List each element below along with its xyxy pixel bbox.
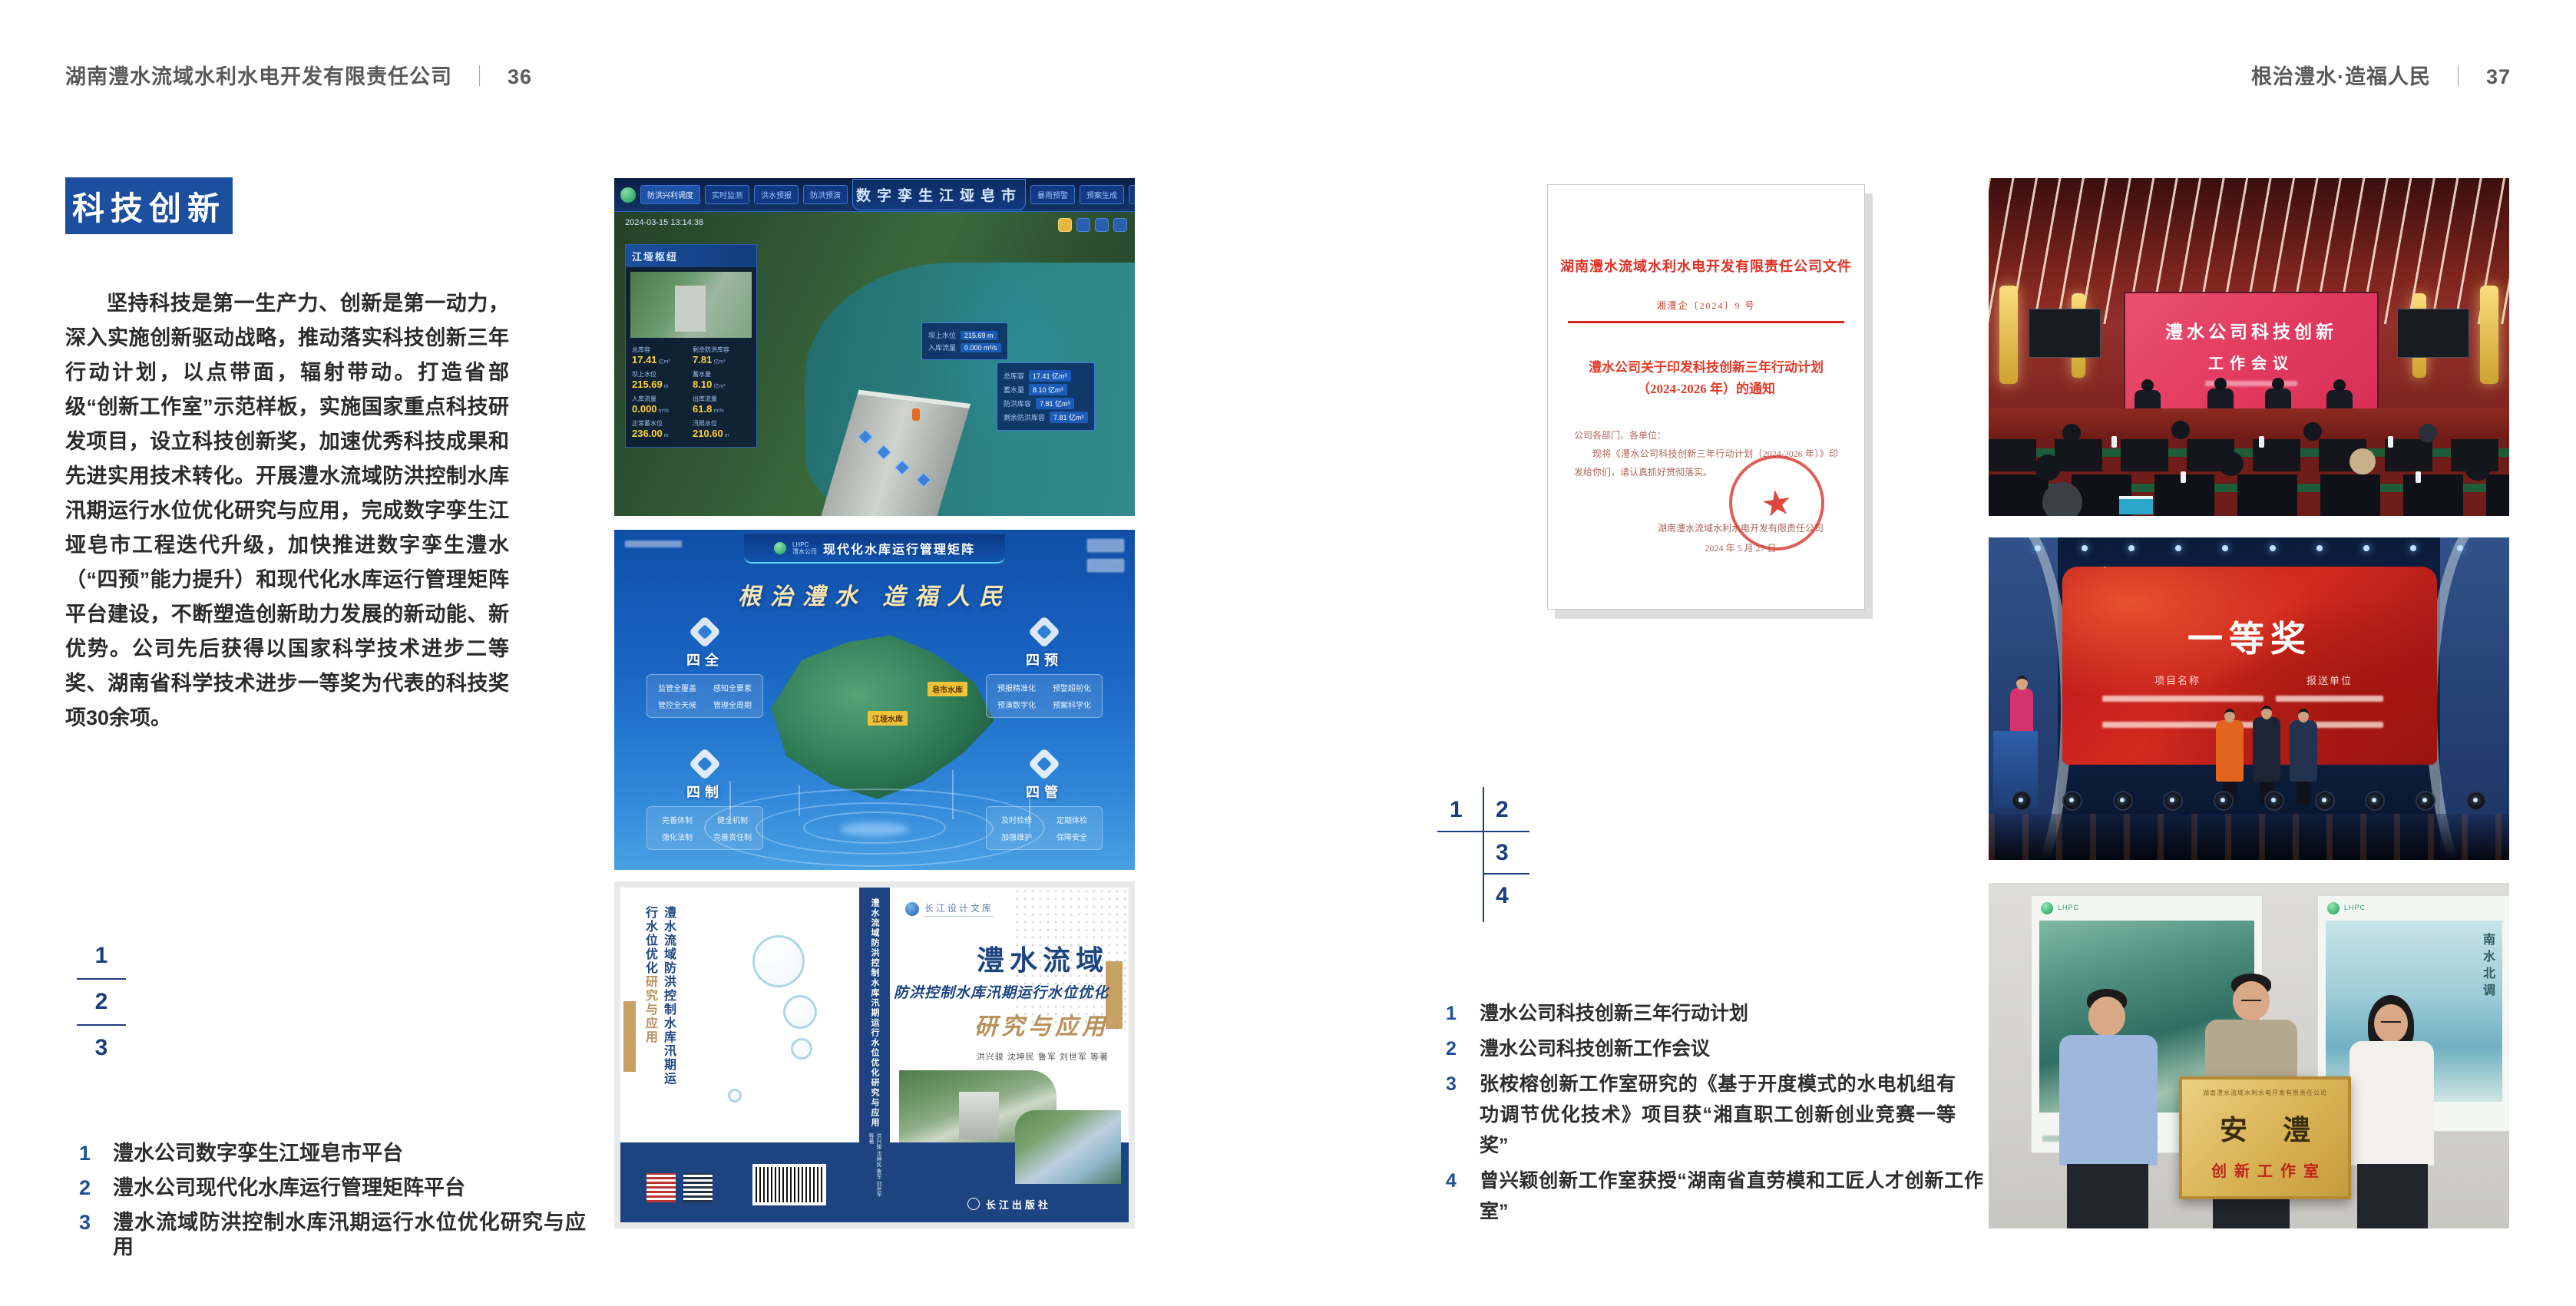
stat-cell: 汛限水位210.60m bbox=[693, 419, 750, 439]
figure-digital-twin-dashboard: 防洪兴利调度 实时监测 洪水预报 防洪预演 数字孪生江垭皂市 暴雨预警 预案生成… bbox=[614, 178, 1135, 516]
figure-number: 2 bbox=[77, 989, 126, 1015]
weather-icon[interactable] bbox=[1058, 218, 1072, 232]
book-spine: 澧水流域防洪控制水库汛期运行水位优化研究与应用 洪兴骏 沈坤民 鲁军 刘世军 等… bbox=[859, 888, 890, 1222]
group-name: 四预 bbox=[986, 650, 1103, 670]
person-white-tee bbox=[2349, 1041, 2434, 1165]
back-cover-title: 澧水流域防洪控制水库汛期运行水位优化研究与应用 bbox=[640, 906, 677, 1090]
dashboard-topbar: 防洪兴利调度 实时监测 洪水预报 防洪预演 数字孪生江垭皂市 暴雨预警 预案生成… bbox=[614, 178, 1135, 212]
stage-floor-lights bbox=[2012, 791, 2486, 811]
caption-row: 2 澧水公司科技创新工作会议 bbox=[1446, 1033, 1983, 1064]
stage-truss bbox=[2426, 537, 2509, 860]
stat-cell: 剩余防洪库容7.81亿m³ bbox=[693, 346, 750, 365]
document-title: 澧水公司关于印发科技创新三年行动计划 （2024-2026 年）的通知 bbox=[1548, 357, 1864, 400]
reservoir-label[interactable]: 皂市水库 bbox=[928, 682, 967, 696]
attendee-head bbox=[2303, 422, 2322, 441]
left-page-number: 36 bbox=[508, 65, 532, 88]
company-logo-text: LHPC澧水公司 bbox=[792, 541, 817, 555]
caption-text: 澧水公司科技创新三年行动计划 bbox=[1480, 998, 1748, 1029]
spine-authors: 洪兴骏 沈坤民 鲁军 刘世军 等著 bbox=[867, 1133, 882, 1202]
water-bottle bbox=[2388, 436, 2393, 448]
compass-icon[interactable] bbox=[1113, 218, 1127, 232]
attendee-head bbox=[2219, 451, 2244, 476]
caption-row: 2 澧水公司现代化水库运行管理矩阵平台 bbox=[79, 1175, 586, 1200]
left-page-header: 湖南澧水流域水利水电开发有限责任公司｜36 bbox=[65, 60, 532, 90]
wall-lamp bbox=[2480, 286, 2498, 384]
caption-row: 3 张桉榕创新工作室研究的《基于开度模式的水电机组有功调节优化技术》项目获“湘直… bbox=[1446, 1069, 1983, 1161]
caption-text: 张桉榕创新工作室研究的《基于开度模式的水电机组有功调节优化技术》项目获“湘直职工… bbox=[1480, 1069, 1956, 1161]
book-title-main: 澧水流域 bbox=[977, 938, 1109, 978]
caption-row: 1 澧水公司数字孪生江垭皂市平台 bbox=[79, 1141, 586, 1165]
person-glasses bbox=[2381, 1021, 2401, 1027]
book-title-sub: 防洪控制水库汛期运行水位优化 bbox=[894, 981, 1109, 1002]
award-title: 一等奖 bbox=[2062, 611, 2437, 662]
tab-flood-rehearsal[interactable]: 防洪预演 bbox=[803, 185, 848, 204]
document-red-rule bbox=[1568, 321, 1844, 323]
figure-book-cover: 澧水流域防洪控制水库汛期运行水位优化研究与应用 澧水流域防洪控制水库汛期运行水位… bbox=[614, 881, 1135, 1228]
matrix-slogan: 根治澧水 造福人民 bbox=[614, 577, 1135, 611]
tab-plan-generate[interactable]: 预案生成 bbox=[1080, 185, 1124, 204]
group-items: 监管全覆盖感知全要素 管控全天候管理全周期 bbox=[646, 674, 763, 718]
attendee-head bbox=[2042, 482, 2082, 516]
tab-realtime-monitor[interactable]: 实时监测 bbox=[705, 185, 749, 204]
layers-icon[interactable] bbox=[1076, 218, 1090, 232]
left-caption-list: 1 澧水公司数字孪生江垭皂市平台 2 澧水公司现代化水库运行管理矩阵平台 3 澧… bbox=[79, 1141, 586, 1269]
book-spread: 澧水流域防洪控制水库汛期运行水位优化研究与应用 澧水流域防洪控制水库汛期运行水位… bbox=[620, 888, 1129, 1222]
locate-icon[interactable] bbox=[1095, 218, 1109, 232]
water-bottle bbox=[2259, 436, 2264, 448]
panelist-silhouette bbox=[2207, 388, 2234, 408]
host-silhouette bbox=[2010, 688, 2033, 737]
hub-info-panel: 江垭枢纽 总库容17.41亿m³ 剩余防洪库容7.81亿m³ 坝上水位215.6… bbox=[625, 244, 757, 448]
matrix-title: 现代化水库运行管理矩阵 bbox=[823, 539, 975, 557]
water-bubble bbox=[783, 995, 817, 1029]
book-front-cover: 长江设计文库 澧水流域 防洪控制水库汛期运行水位优化 研究与应用 洪兴骏 沈坤民… bbox=[890, 888, 1129, 1222]
right-header-title: 根治澧水·造福人民 bbox=[2251, 65, 2431, 88]
stat-cell: 出库流量61.8m³/s bbox=[693, 395, 750, 415]
tab-rain-warning[interactable]: 暴雨预警 bbox=[1030, 185, 1075, 204]
figure-grid-vline bbox=[1483, 787, 1484, 922]
stat-cell: 坝上水位215.69m bbox=[632, 370, 689, 390]
panelist-silhouette bbox=[2265, 388, 2291, 408]
figure-number-divider bbox=[77, 1024, 126, 1026]
attendee-head bbox=[2035, 455, 2061, 481]
header-divider: ｜ bbox=[469, 60, 491, 90]
section-title-badge: 科技创新 bbox=[65, 177, 233, 234]
barcode bbox=[752, 1164, 826, 1205]
presenter-suit bbox=[2253, 717, 2280, 782]
figure-number: 1 bbox=[77, 943, 126, 969]
qr-code bbox=[683, 1173, 713, 1202]
figure-grid-hline bbox=[1437, 831, 1529, 832]
matrix-header-plate: LHPC澧水公司 现代化水库运行管理矩阵 bbox=[744, 534, 1005, 564]
group-name: 四管 bbox=[986, 782, 1103, 802]
screen-title-line1: 澧水公司科技创新 bbox=[2165, 317, 2337, 343]
water-bubble bbox=[728, 1089, 742, 1103]
dashboard-timestamp: 2024-03-15 13:14:38 bbox=[625, 218, 703, 227]
caption-number: 2 bbox=[79, 1175, 101, 1200]
rig-lights bbox=[2035, 545, 2463, 551]
water-bottle bbox=[2416, 471, 2421, 483]
person-head bbox=[2088, 997, 2125, 1037]
hud-icon-row bbox=[1058, 218, 1127, 232]
light-pillar bbox=[952, 770, 954, 819]
series-logo-icon bbox=[905, 902, 919, 916]
reservoir-label[interactable]: 江垭水库 bbox=[868, 711, 908, 726]
figure-number: 2 bbox=[1496, 797, 1509, 823]
attendee-head bbox=[2062, 424, 2081, 442]
unit-row-blur bbox=[2276, 696, 2383, 702]
tissue-box bbox=[2119, 496, 2153, 514]
side-screen bbox=[2397, 309, 2469, 358]
module-chip[interactable]: 防洪兴利调度 bbox=[640, 185, 700, 204]
figure-grid-hline bbox=[1483, 873, 1529, 875]
matrix-group-siquan: 四全 监管全覆盖感知全要素 管控全天候管理全周期 bbox=[646, 620, 763, 718]
caption-text: 澧水公司科技创新工作会议 bbox=[1480, 1033, 1710, 1064]
plaque-subtitle: 创新工作室 bbox=[2204, 1159, 2326, 1181]
light-pillar bbox=[729, 781, 731, 824]
spine-title: 澧水流域防洪控制水库汛期运行水位优化研究与应用 bbox=[868, 898, 881, 1129]
caption-text: 曾兴颖创新工作室获授“湖南省直劳模和工匠人才创新工作室” bbox=[1480, 1165, 1983, 1227]
caption-row: 4 曾兴颖创新工作室获授“湖南省直劳模和工匠人才创新工作室” bbox=[1446, 1165, 1983, 1227]
figure-matrix-platform: LHPC澧水公司 现代化水库运行管理矩阵 根治澧水 造福人民 皂市水库 江垭水库… bbox=[614, 530, 1135, 870]
project-row-blur bbox=[2102, 696, 2264, 702]
reflective-floor bbox=[1989, 814, 2509, 860]
screen-title-line2: 工作会议 bbox=[2208, 351, 2294, 373]
figure-number-divider bbox=[77, 978, 126, 980]
light-pillar bbox=[799, 785, 800, 816]
column-submitting-unit: 报送单位 bbox=[2306, 673, 2353, 687]
person-pants bbox=[2357, 1164, 2428, 1228]
powerhouse-photo bbox=[1015, 1110, 1121, 1184]
water-bottle bbox=[2111, 436, 2117, 448]
group-name: 四制 bbox=[646, 782, 763, 802]
figure-number: 1 bbox=[1450, 797, 1463, 823]
caption-number: 3 bbox=[1446, 1069, 1467, 1099]
hub-stats-grid: 总库容17.41亿m³ 剩余防洪库容7.81亿m³ 坝上水位215.69m 蓄水… bbox=[626, 342, 756, 447]
plaque-org-line: 湖南澧水流域水利水电开发有限责任公司 bbox=[2203, 1089, 2327, 1097]
stat-cell: 正常蓄水位236.00m bbox=[632, 419, 689, 439]
document-number: 湘澧企〔2024〕9 号 bbox=[1548, 299, 1864, 312]
attendee-head bbox=[2419, 424, 2437, 442]
qr-code bbox=[646, 1173, 676, 1202]
studio-plaque: 湖南澧水流域水利水电开发有限责任公司 安澧 创新工作室 bbox=[2179, 1076, 2351, 1199]
caption-number: 2 bbox=[1446, 1033, 1467, 1064]
map-tooltip: 总库容17.41 亿m³ 蓄水量8.10 亿m³ 防洪库容7.81 亿m³ 剩余… bbox=[997, 362, 1095, 431]
toolbar-button-blur[interactable] bbox=[1087, 559, 1124, 572]
wall-lamp bbox=[1999, 286, 2018, 384]
photo-award-ceremony: 一等奖 项目名称 报送单位 bbox=[1989, 537, 2509, 860]
company-logo-icon bbox=[774, 542, 786, 554]
stat-cell: 蓄水量8.10亿m³ bbox=[693, 370, 750, 390]
book-back-cover: 澧水流域防洪控制水库汛期运行水位优化研究与应用 bbox=[620, 888, 859, 1222]
header-divider: ｜ bbox=[2448, 60, 2469, 90]
figure-number: 4 bbox=[1496, 883, 1509, 909]
document-header: 湖南澧水流域水利水电开发有限责任公司文件 bbox=[1548, 256, 1864, 276]
map-tooltip: 坝上水位215.69 m 入库流量0.000 m³/s bbox=[921, 322, 1008, 360]
figure-number: 3 bbox=[1496, 840, 1509, 866]
right-caption-list: 1 澧水公司科技创新三年行动计划 2 澧水公司科技创新工作会议 3 张桉榕创新工… bbox=[1446, 998, 1983, 1232]
person-blue-polo bbox=[2059, 1035, 2158, 1165]
water-bottle bbox=[2181, 471, 2186, 483]
caption-text: 澧水公司数字孪生江垭皂市平台 bbox=[113, 1141, 403, 1165]
panelist-silhouette bbox=[2326, 390, 2353, 410]
group-name: 四全 bbox=[646, 650, 763, 670]
book-title-tail: 研究与应用 bbox=[974, 1007, 1109, 1041]
caption-row: 3 澧水流域防洪控制水库汛期运行水位优化研究与应用 bbox=[79, 1210, 586, 1259]
person-glasses bbox=[2241, 1000, 2261, 1005]
plaque-name: 安澧 bbox=[2184, 1108, 2346, 1148]
group-items: 预报精准化预警超前化 预演数字化预案科学化 bbox=[986, 674, 1103, 718]
caption-row: 1 澧水公司科技创新三年行动计划 bbox=[1446, 998, 1983, 1029]
publisher-mark: 长江出版社 bbox=[890, 1197, 1129, 1212]
stat-cell: 总库容17.41亿m³ bbox=[632, 346, 689, 365]
poster-logo-text: LHPC bbox=[2058, 904, 2079, 911]
attendee-head bbox=[2465, 455, 2491, 481]
buoy-marker bbox=[912, 408, 920, 421]
caption-text: 澧水公司现代化水库运行管理矩阵平台 bbox=[113, 1175, 465, 1200]
building-icon bbox=[689, 748, 721, 780]
hub-photo-thumbnail bbox=[630, 272, 752, 338]
hub-panel-title: 江垭枢纽 bbox=[626, 245, 756, 267]
tab-dispatch-execute[interactable]: 调度执行 bbox=[1129, 185, 1135, 204]
caption-number: 4 bbox=[1446, 1165, 1467, 1196]
column-project-name: 项目名称 bbox=[2154, 673, 2201, 687]
water-bubble bbox=[791, 1038, 812, 1060]
page-spread: 湖南澧水流域水利水电开发有限责任公司｜36 根治澧水·造福人民｜37 科技创新 … bbox=[0, 0, 2576, 1306]
left-figure-number-list: 1 2 3 bbox=[77, 943, 126, 1061]
dashboard-title: 数字孪生江垭皂市 bbox=[852, 179, 1026, 210]
series-logo-row: 长江设计文库 bbox=[905, 901, 994, 917]
matrix-group-siyu: 四预 预报精准化预警超前化 预演数字化预案科学化 bbox=[986, 620, 1103, 718]
toolbar-button-blur[interactable] bbox=[1087, 539, 1124, 552]
awardee-orange bbox=[2216, 720, 2244, 782]
panelist-silhouette bbox=[2135, 390, 2161, 410]
stat-cell: 入库流量0.000m³/s bbox=[632, 395, 689, 415]
section-body-paragraph: 坚持科技是第一生产力、创新是第一动力，深入实施创新驱动战略，推动落实科技创新三年… bbox=[65, 286, 509, 736]
water-drop-icon bbox=[689, 616, 721, 648]
publisher-logo-icon bbox=[967, 1198, 980, 1210]
caption-number: 1 bbox=[1446, 998, 1467, 1029]
figure-number: 3 bbox=[77, 1035, 126, 1061]
attendee-head bbox=[2171, 421, 2190, 439]
attendee-head bbox=[2349, 448, 2376, 474]
back-cover-band bbox=[620, 1142, 859, 1222]
side-screen bbox=[2029, 309, 2101, 358]
company-logo-icon bbox=[2327, 902, 2340, 914]
dam-shape bbox=[959, 1092, 999, 1139]
water-bubble bbox=[752, 935, 805, 987]
halo-core bbox=[840, 822, 909, 836]
book-authors: 洪兴骏 沈坤民 鲁军 刘世军 等著 bbox=[977, 1050, 1109, 1063]
photo-innovation-studio-plaque: LHPC LHPC 南水北调 湖南澧水流域水利水电开发有限责任公司 安澧 bbox=[1989, 883, 2509, 1228]
person-pants bbox=[2067, 1164, 2148, 1228]
audience-row bbox=[1989, 439, 2509, 471]
figure-official-document: 湖南澧水流域水利水电开发有限责任公司文件 湘澧企〔2024〕9 号 澧水公司关于… bbox=[1547, 184, 1865, 610]
poster-logo-text: LHPC bbox=[2344, 904, 2366, 911]
right-page-number: 37 bbox=[2486, 65, 2511, 88]
timestamp-blur bbox=[625, 541, 682, 547]
series-name: 长江设计文库 bbox=[924, 901, 994, 917]
photo-innovation-meeting: 澧水公司科技创新 工作会议 bbox=[1989, 178, 2509, 516]
dam-thumb-shape bbox=[675, 286, 706, 332]
caption-number: 1 bbox=[79, 1141, 101, 1165]
poster-calligraphy: 南水北调 bbox=[2478, 933, 2496, 1000]
right-page-header: 根治澧水·造福人民｜37 bbox=[2251, 60, 2511, 90]
light-pillar bbox=[1029, 795, 1030, 828]
led-screen: 一等奖 项目名称 报送单位 bbox=[2062, 567, 2437, 765]
caption-number: 3 bbox=[79, 1210, 101, 1235]
gear-icon bbox=[1028, 748, 1060, 780]
awardee-navy bbox=[2290, 720, 2317, 782]
app-logo-icon bbox=[620, 187, 636, 203]
back-cover-accent-bar bbox=[623, 1001, 636, 1072]
company-logo-icon bbox=[2041, 902, 2053, 914]
tab-flood-forecast[interactable]: 洪水预报 bbox=[754, 185, 799, 204]
caption-text: 澧水流域防洪控制水库汛期运行水位优化研究与应用 bbox=[113, 1210, 586, 1259]
left-header-title: 湖南澧水流域水利水电开发有限责任公司 bbox=[65, 65, 452, 88]
forecast-icon bbox=[1028, 616, 1060, 648]
